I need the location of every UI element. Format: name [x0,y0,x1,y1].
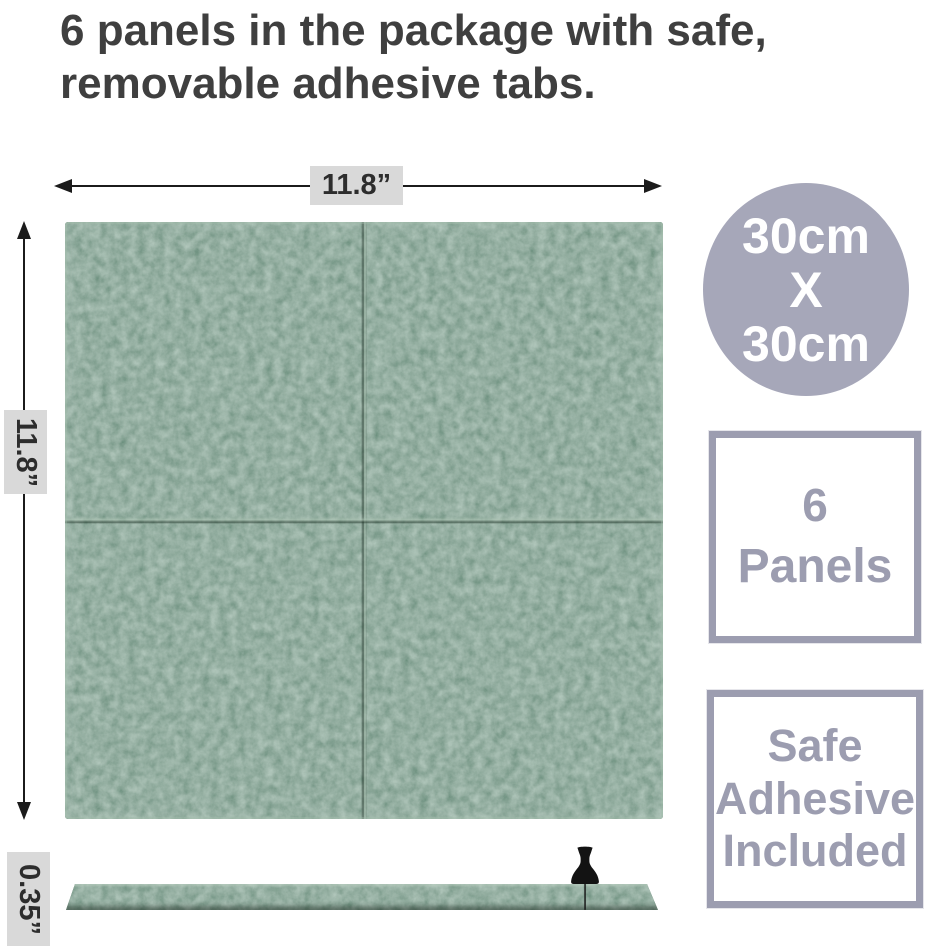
push-pin-icon [566,846,604,912]
panel-count-box: 6 Panels [709,431,921,643]
product-infographic: 6 panels in the package with safe, remov… [0,0,927,946]
arrowhead-down-icon [17,802,31,820]
size-line-2: X [789,263,822,317]
acoustic-panel-image [65,222,663,819]
height-dimension-label: 11.8” [4,410,47,494]
adhesive-line-3: Included [722,825,907,878]
panel-horizontal-seam [65,517,663,524]
size-badge-circle: 30cm X 30cm [703,183,909,396]
height-dimension-text: 11.8” [9,417,42,486]
panel-count-label: Panels [738,536,893,598]
panel-count-value: 6 [802,476,828,536]
title-line-1: 6 panels in the package with safe, [60,4,767,57]
adhesive-line-2: Adhesive [715,773,915,826]
width-dimension-label: 11.8” [310,166,403,205]
height-dimension-line [23,224,25,817]
size-line-1: 30cm [742,209,870,263]
thickness-dimension-text: 0.35” [12,864,45,935]
page-title: 6 panels in the package with safe, remov… [60,4,767,110]
adhesive-line-1: Safe [767,720,862,773]
thickness-dimension-label: 0.35” [7,852,50,946]
size-line-3: 30cm [742,317,870,371]
adhesive-info-box: Safe Adhesive Included [707,690,923,908]
title-line-2: removable adhesive tabs. [60,57,767,110]
height-dimension-arrow [15,221,33,820]
arrowhead-right-icon [644,179,662,193]
